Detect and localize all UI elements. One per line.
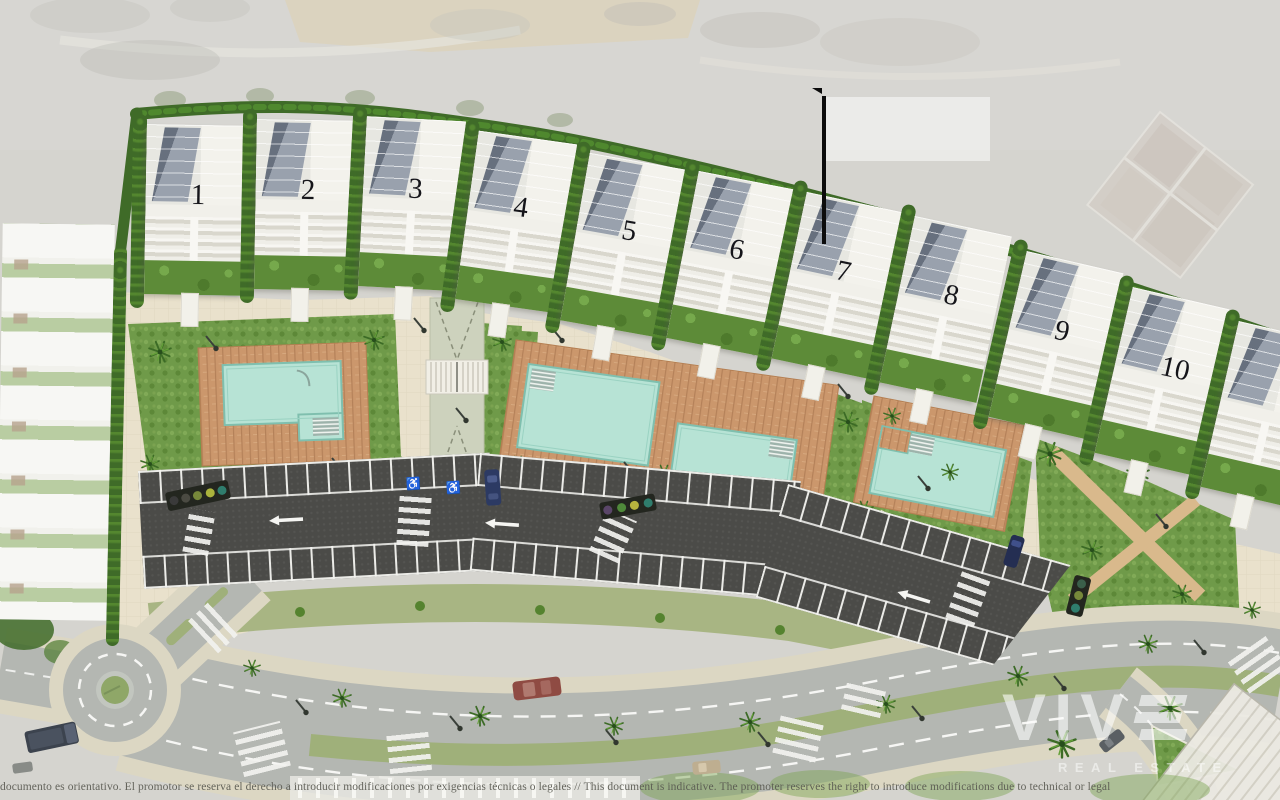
- crosswalk: [841, 678, 887, 718]
- parking-stalls-row: [470, 538, 794, 599]
- parking-stalls-row: [779, 484, 1071, 597]
- parking-segment: [755, 484, 1070, 678]
- callout-flag-icon: [812, 88, 822, 94]
- garden-path: [697, 343, 721, 380]
- garden-path: [290, 288, 309, 322]
- adjacent-row-houses: [0, 223, 115, 621]
- pool-steps: [529, 369, 556, 392]
- watermark-brand-text: VIV: [1002, 684, 1132, 750]
- recycling-bins: [1065, 575, 1091, 618]
- house-garden: [144, 260, 244, 296]
- beach-strip: [285, 0, 700, 52]
- truck: [24, 721, 79, 753]
- accessible-parking-icon: ♿: [446, 482, 462, 495]
- garden-path: [591, 325, 615, 362]
- roof-solar-panel: [1228, 328, 1280, 406]
- swimming-pool: [517, 364, 659, 466]
- house-plot: 1: [139, 124, 250, 296]
- callout-label-box: [822, 97, 990, 161]
- pool-steps: [908, 434, 935, 456]
- crosswalk: [1227, 634, 1280, 693]
- swimming-pool: [869, 426, 1006, 517]
- crosswalk: [772, 716, 823, 763]
- swimming-pool: [223, 361, 343, 425]
- watermark-tagline: REAL ESTATE: [1058, 760, 1229, 775]
- crosswalk: [188, 601, 240, 654]
- disclaimer-separator: //: [571, 781, 583, 793]
- callout-pointer-line: [822, 96, 826, 244]
- house-terrace: [255, 211, 355, 257]
- crosswalk: [386, 728, 432, 774]
- west-road: [0, 670, 128, 692]
- parking-stalls-row: [755, 566, 1047, 679]
- disclaimer-es: documento es orientativo. El promotor se…: [0, 781, 571, 793]
- accessible-parking-icon: ♿: [406, 478, 422, 491]
- garden-path: [1072, 500, 1196, 600]
- site-plan: 1 2 3 4: [0, 0, 1280, 800]
- garden-path: [393, 286, 413, 321]
- garden-path: [180, 293, 199, 327]
- pool-steps: [313, 417, 340, 436]
- house-plot: 2: [249, 119, 360, 291]
- vive-logo-e-icon: [1140, 695, 1186, 740]
- stairs: [426, 360, 488, 394]
- house-number: 1: [190, 179, 205, 212]
- pool-deck-left: [198, 342, 370, 466]
- crosswalk: [396, 495, 431, 547]
- car: [12, 761, 33, 774]
- pool-steps: [768, 438, 794, 459]
- garden-path: [1052, 452, 1200, 596]
- car: [512, 676, 562, 701]
- parking-direction-arrow: [484, 516, 521, 530]
- garden-path: [801, 364, 826, 401]
- house-number: 2: [300, 174, 315, 207]
- garden-path: [1123, 459, 1148, 496]
- garden-path: [909, 388, 934, 425]
- garden-path: [1017, 423, 1042, 460]
- disclaimer-text: documento es orientativo. El promotor se…: [0, 781, 1280, 793]
- disclaimer-en: This document is indicative. The promote…: [584, 781, 1111, 793]
- car: [692, 760, 721, 775]
- neighboring-building: [1087, 112, 1253, 278]
- house-terrace: [360, 208, 461, 257]
- parking-direction-arrow: [268, 512, 305, 526]
- house-terrace: [145, 216, 245, 262]
- watermark-logo: VIV REAL ESTATE: [1002, 684, 1229, 775]
- crosswalk: [233, 721, 291, 777]
- garden-path: [1229, 493, 1254, 530]
- house-garden: [254, 255, 354, 291]
- house-number: 3: [407, 173, 423, 207]
- garden-path: [487, 302, 510, 338]
